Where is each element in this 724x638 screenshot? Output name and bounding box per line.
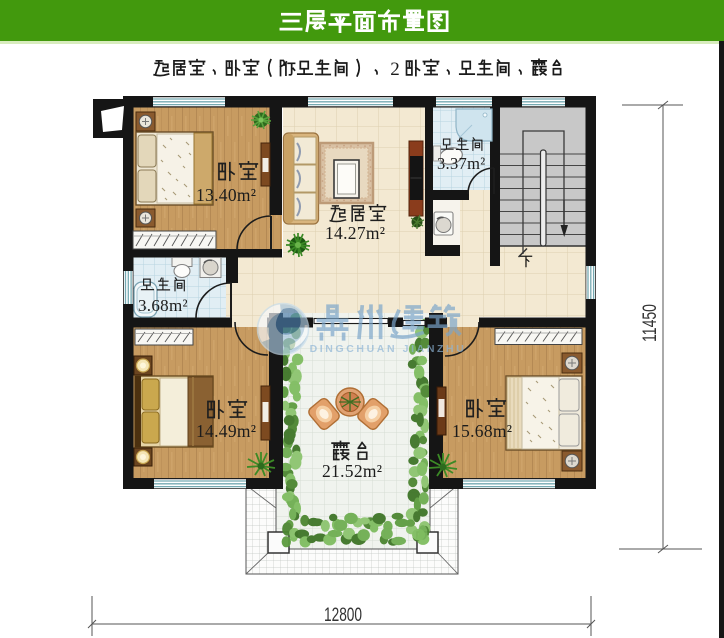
svg-text:14.49m²: 14.49m²	[196, 421, 256, 441]
svg-text:2: 2	[390, 59, 400, 80]
svg-text:21.52m²: 21.52m²	[322, 461, 382, 481]
svg-text:3.68m²: 3.68m²	[138, 296, 188, 315]
svg-text:14.27m²: 14.27m²	[325, 223, 385, 243]
svg-text:3.37m²: 3.37m²	[437, 154, 485, 173]
svg-text:11450: 11450	[640, 304, 661, 342]
svg-text:15.68m²: 15.68m²	[452, 421, 512, 441]
svg-text:13.40m²: 13.40m²	[196, 185, 256, 205]
svg-text:12800: 12800	[324, 605, 362, 626]
svg-text:DINGCHUAN JIANZHU: DINGCHUAN JIANZHU	[310, 343, 467, 355]
